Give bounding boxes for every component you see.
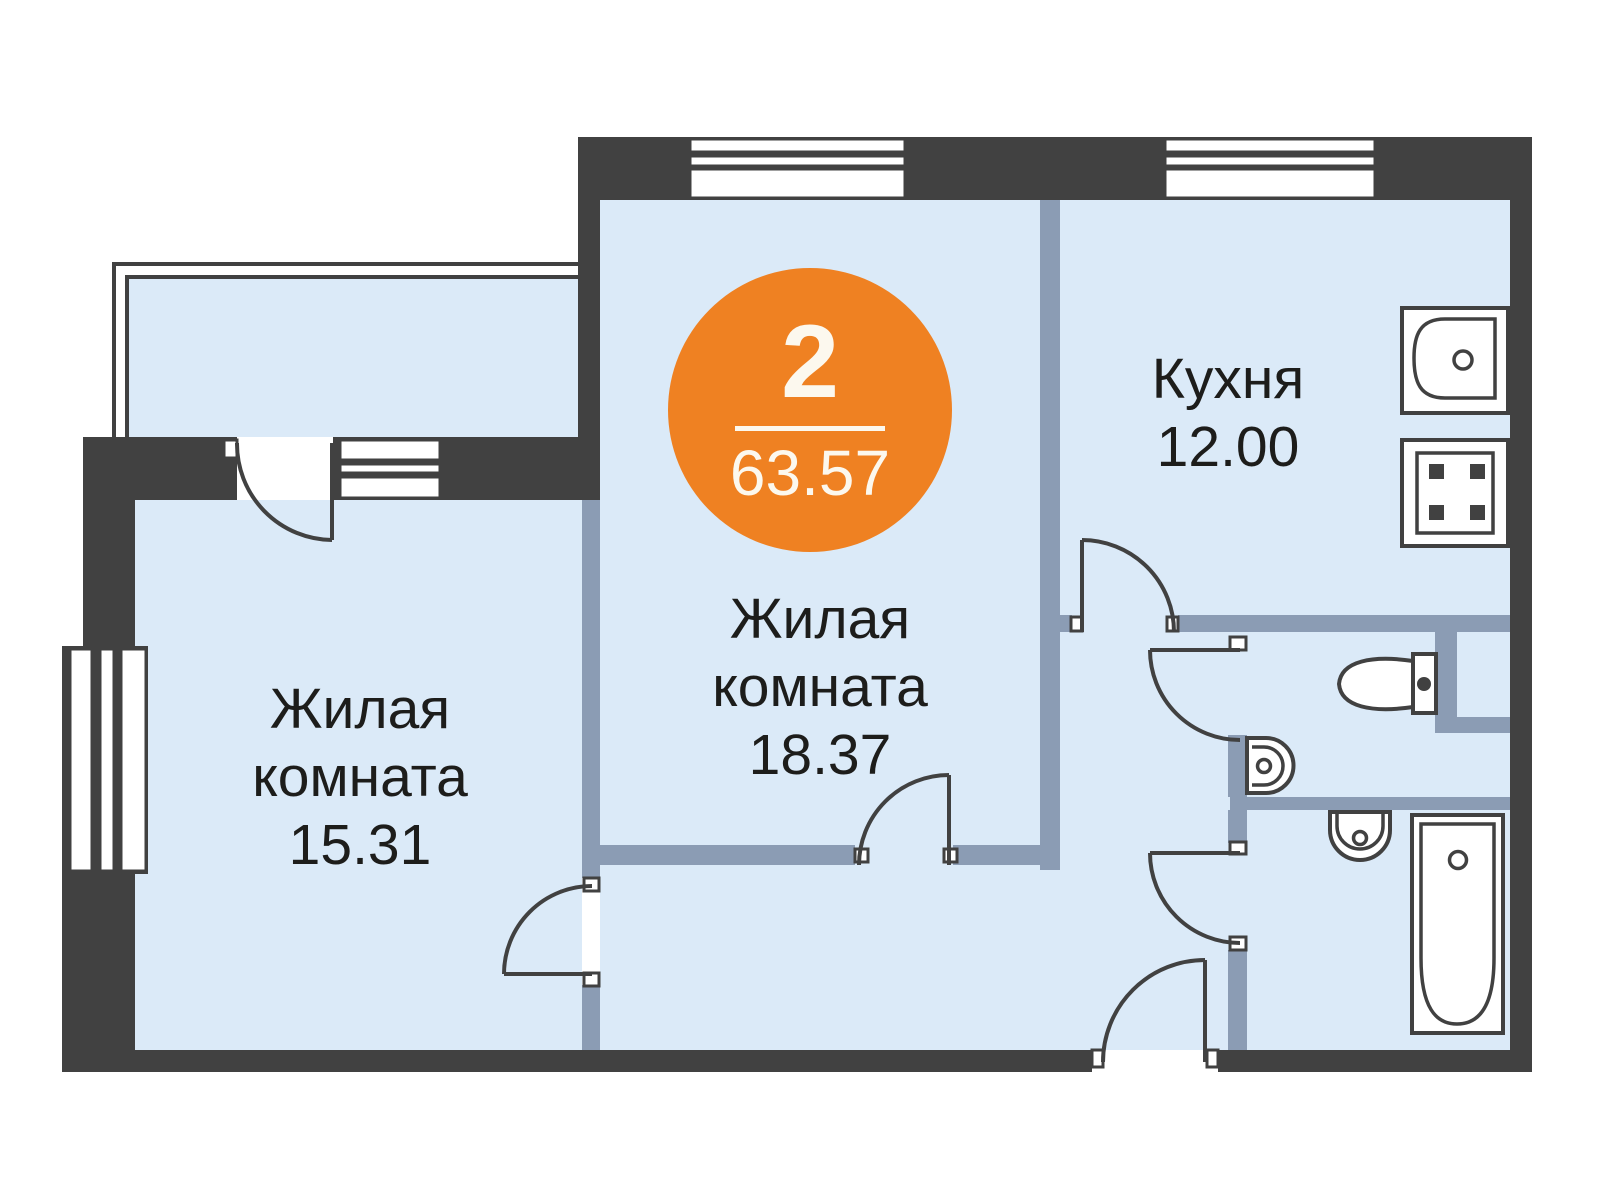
- balcony-wall-window: [340, 440, 440, 498]
- partition-bath-left-lower: [1228, 950, 1247, 1050]
- kitchen-window: [1165, 139, 1375, 198]
- area-badge: 2 63.57: [668, 268, 952, 552]
- partition-livingmain-kitchen: [1040, 200, 1060, 870]
- living-main-label: Жилая комната 18.37: [620, 585, 1020, 789]
- partition-living2-hall-upper: [582, 500, 600, 878]
- living-main-area: 18.37: [620, 721, 1020, 789]
- partition-bath-left-upper: [1228, 810, 1247, 843]
- living-main-window: [690, 139, 905, 198]
- partition-livingmain-bottom-right: [953, 845, 1040, 865]
- wall-right: [1510, 137, 1532, 1072]
- living-second-name-line2: комната: [160, 743, 560, 811]
- wall-bottom-right-piece: [1218, 1050, 1532, 1072]
- living-main-name-line2: комната: [620, 653, 1020, 721]
- jamb-entrance-right: [1207, 1050, 1218, 1067]
- living-second-label: Жилая комната 15.31: [160, 675, 560, 879]
- living-second-window: [70, 649, 146, 871]
- living-second-area: 15.31: [160, 811, 560, 879]
- living-second-name-line1: Жилая: [160, 675, 560, 743]
- wc-washbasin-icon: [1247, 738, 1294, 793]
- badge-divider: [735, 426, 885, 431]
- total-area: 63.57: [730, 441, 890, 505]
- partition-living2-hall-stub: [582, 985, 600, 1050]
- partition-livingmain-bottom-left: [600, 845, 855, 865]
- balcony-floor: [127, 277, 578, 437]
- floor-plan: 2 63.57 Жилая комната 18.37 Жилая комнат…: [0, 0, 1600, 1200]
- wall-left-upper: [83, 495, 135, 650]
- partition-wc-bath: [1230, 797, 1510, 810]
- living-main-name-line1: Жилая: [620, 585, 1020, 653]
- wall-left-lower: [62, 872, 135, 1052]
- kitchen-label: Кухня 12.00: [1028, 345, 1428, 481]
- wall-bottom-left-piece: [62, 1050, 1092, 1072]
- jamb-balcony-door: [224, 440, 237, 458]
- partition-wc-left: [1228, 735, 1247, 797]
- bath-washbasin-icon: [1330, 812, 1390, 860]
- bathtub-icon: [1412, 815, 1503, 1033]
- kitchen-name: Кухня: [1028, 345, 1428, 413]
- wall-under-balcony-left: [83, 437, 237, 500]
- kitchen-area: 12.00: [1028, 413, 1428, 481]
- toilet-icon: [1339, 654, 1436, 713]
- partition-shaft-bottom: [1435, 717, 1510, 733]
- rooms-count: 2: [781, 310, 839, 414]
- partition-kitchen-bottom: [1178, 615, 1510, 632]
